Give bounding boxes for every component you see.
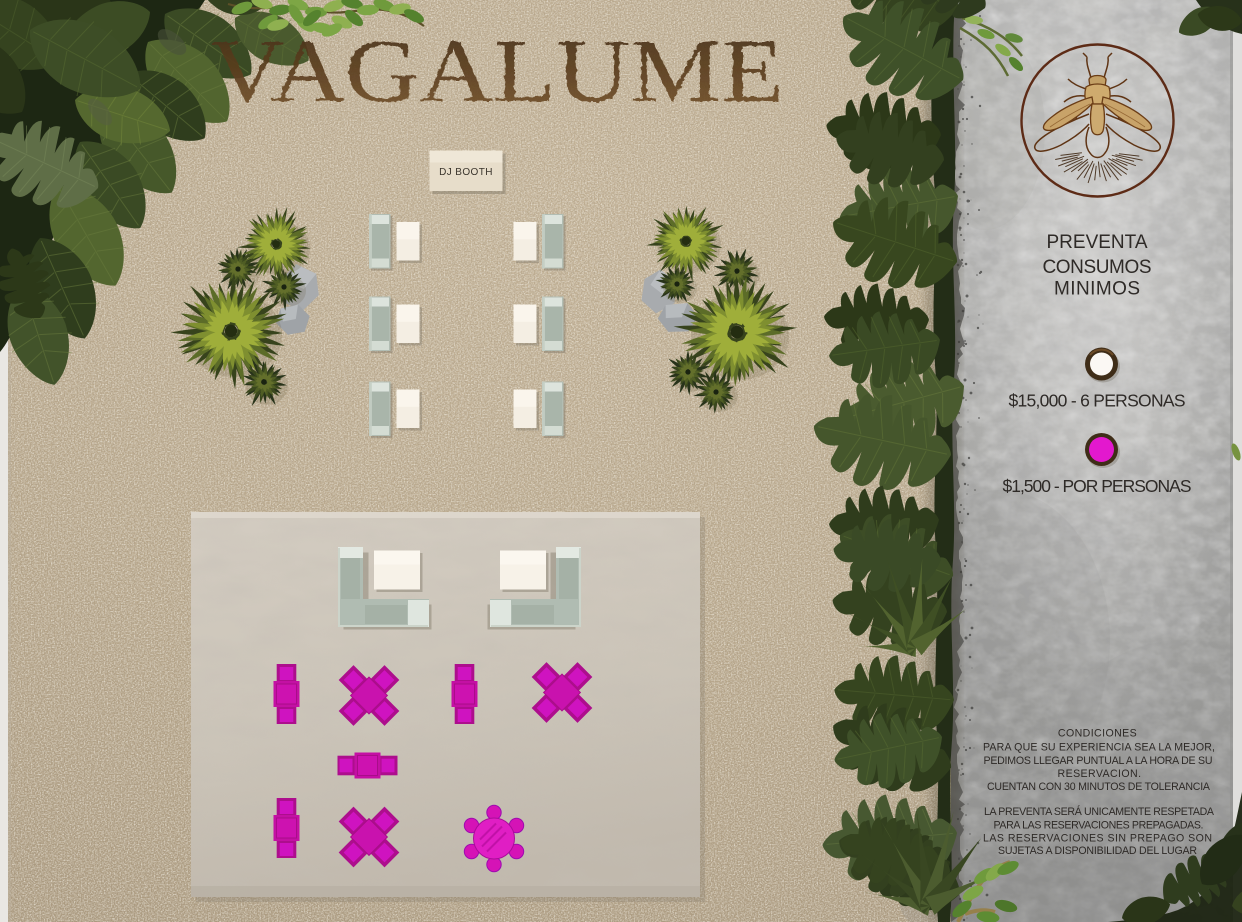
svg-text:RESERVACION.: RESERVACION. — [1058, 768, 1142, 780]
svg-text:DJ BOOTH: DJ BOOTH — [439, 167, 493, 178]
svg-text:$15,000 - 6 PERSONAS: $15,000 - 6 PERSONAS — [1009, 391, 1186, 411]
svg-text:LA PREVENTA SERÁ UNICAMENTE RE: LA PREVENTA SERÁ UNICAMENTE RESPETADA — [984, 805, 1215, 818]
svg-text:PARA QUE SU EXPERIENCIA SEA LA: PARA QUE SU EXPERIENCIA SEA LA MEJOR, — [983, 741, 1215, 753]
svg-text:MINIMOS: MINIMOS — [1054, 279, 1140, 300]
svg-text:LAS RESERVACIONES SIN PREPAGO: LAS RESERVACIONES SIN PREPAGO SON — [983, 832, 1212, 844]
svg-text:CONDICIONES: CONDICIONES — [1058, 728, 1137, 740]
svg-text:PREVENTA: PREVENTA — [1047, 232, 1148, 253]
svg-text:VAGALUME: VAGALUME — [210, 22, 784, 121]
svg-text:PEDIMOS LLEGAR PUNTUAL A LA HO: PEDIMOS LLEGAR PUNTUAL A LA HORA DE SU — [984, 755, 1213, 767]
svg-text:SUJETAS A DISPONIBILIDAD DEL L: SUJETAS A DISPONIBILIDAD DEL LUGAR — [998, 845, 1197, 857]
svg-text:CUENTAN CON 30 MINUTOS DE TOLE: CUENTAN CON 30 MINUTOS DE TOLERANCIA — [987, 781, 1211, 793]
svg-text:$1,500 - POR PERSONAS: $1,500 - POR PERSONAS — [1003, 476, 1192, 496]
svg-text:PARA LAS RESERVACIONES PREPAGA: PARA LAS RESERVACIONES PREPAGADAS. — [994, 819, 1204, 831]
svg-text:CONSUMOS: CONSUMOS — [1043, 257, 1152, 278]
